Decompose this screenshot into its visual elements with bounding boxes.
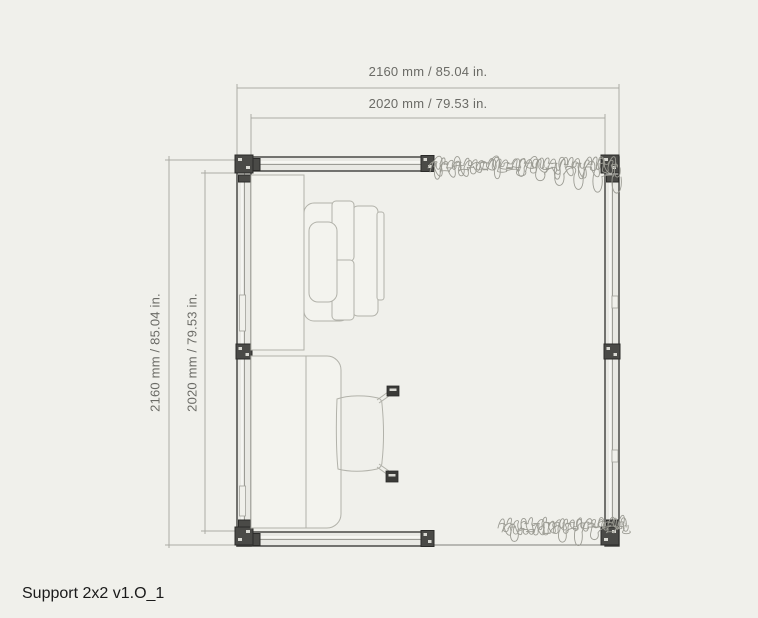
wall-joint [239, 175, 251, 182]
dimension-label-top-inner: 2020 mm / 79.53 in. [238, 96, 618, 111]
wall-end-post-top [421, 156, 434, 172]
wall-mid-post-right [604, 344, 620, 359]
desk-chair [304, 201, 384, 321]
wall-joint [239, 520, 251, 527]
corner-post-top-left [235, 155, 253, 173]
wall-hardware [240, 295, 246, 331]
plant-top-right [428, 156, 621, 193]
dimension-label-top-outer: 2160 mm / 85.04 in. [238, 64, 618, 79]
side-chair [336, 386, 399, 482]
desk [251, 175, 304, 350]
wall-mid-post-left [236, 344, 252, 359]
dimension-label-left-outer: 2160 mm / 85.04 in. [148, 163, 163, 543]
wall-bottom [237, 532, 433, 546]
floorplan-canvas: 2160 mm / 85.04 in. 2020 mm / 79.53 in. … [0, 0, 758, 618]
corner-post-bottom-right [601, 527, 619, 545]
wall-end-post-bottom [421, 531, 434, 547]
wall-hardware [240, 486, 246, 516]
wall-top [237, 157, 433, 171]
sofa [251, 356, 341, 528]
wall-hardware [612, 450, 618, 462]
floorplan-svg [0, 0, 758, 618]
plan-title: Support 2x2 v1.O_1 [22, 585, 164, 603]
corner-post-bottom-left [235, 527, 253, 545]
wall-hardware [612, 296, 618, 308]
wall-joint [253, 159, 260, 171]
wall-joint [253, 534, 260, 546]
dimension-label-left-inner: 2020 mm / 79.53 in. [185, 163, 200, 543]
